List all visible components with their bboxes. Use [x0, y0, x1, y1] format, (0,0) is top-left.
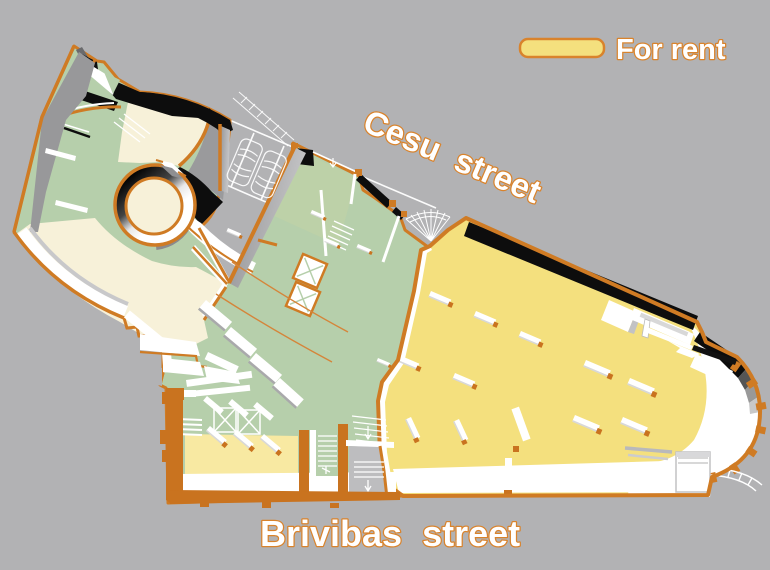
svg-text:For rent: For rent: [616, 34, 726, 66]
svg-text:Brivibas street: Brivibas street: [260, 513, 520, 554]
